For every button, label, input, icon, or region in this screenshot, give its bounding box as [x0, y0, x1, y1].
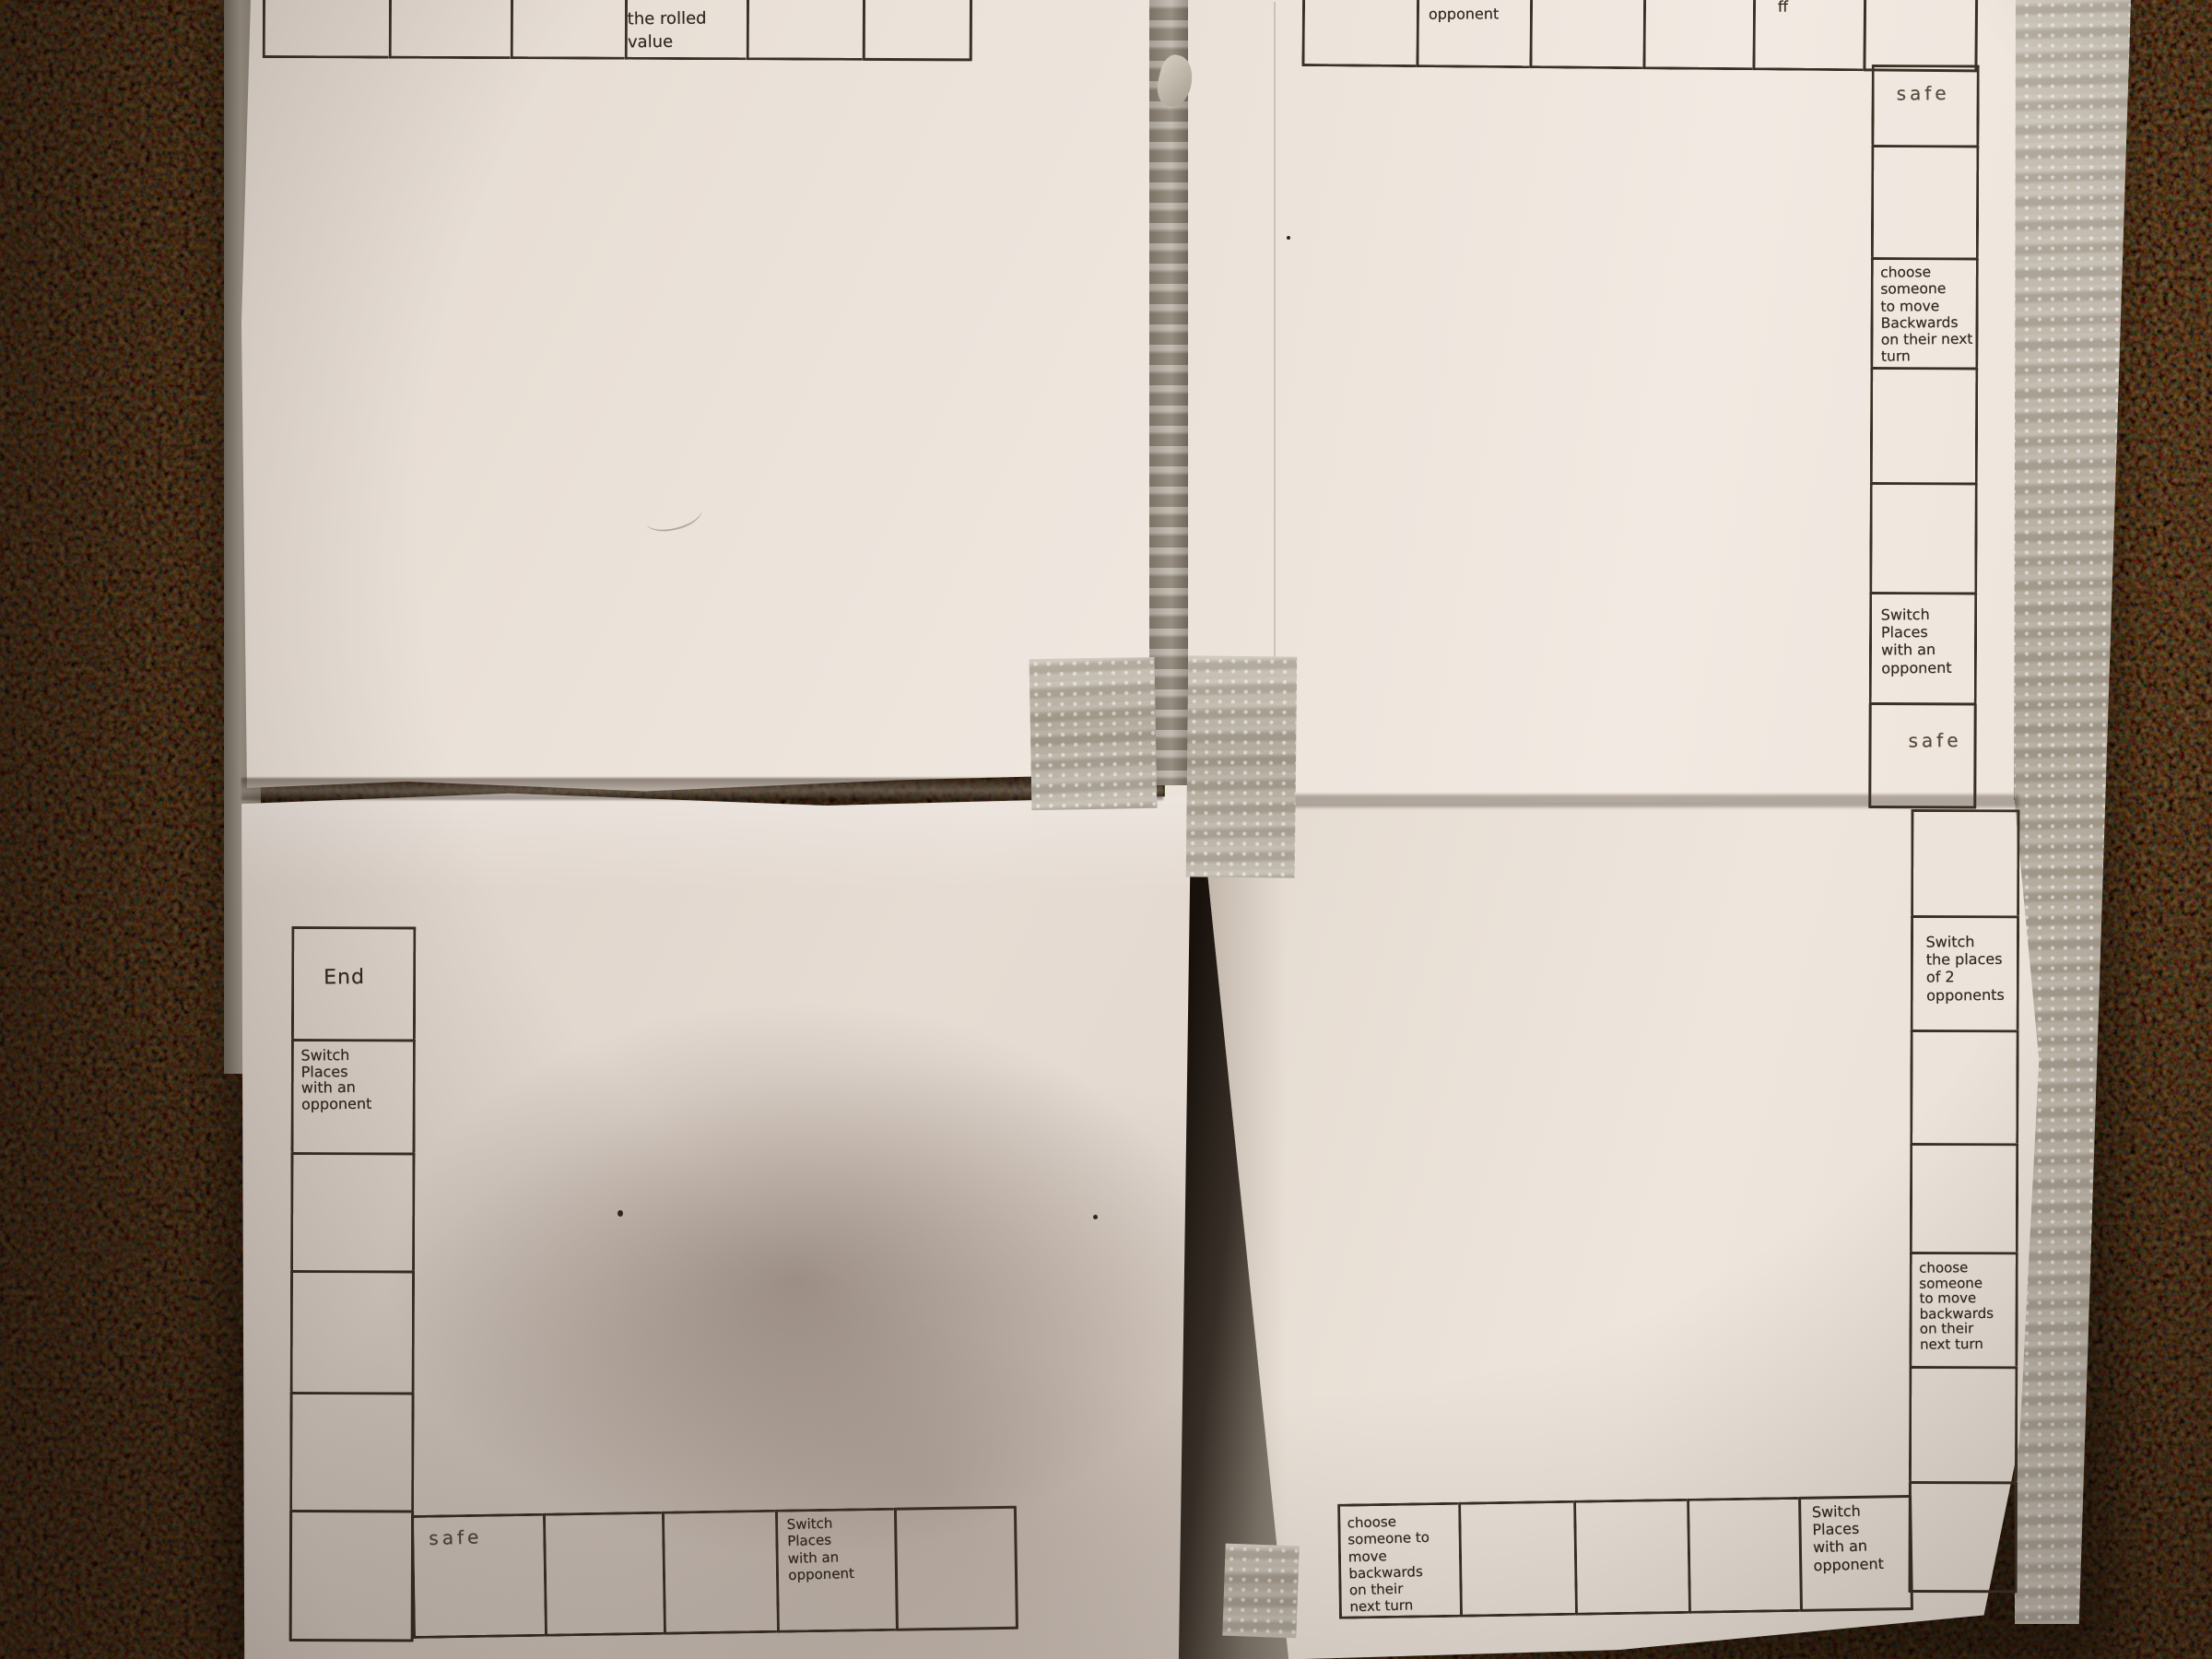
- paper-sheet-top-left: [241, 0, 1159, 807]
- board-cell-bottom-left-row-0: safe: [411, 1513, 545, 1639]
- board-cell-text: End: [324, 966, 365, 989]
- board-cell-bottom-left-column-4: [289, 1392, 414, 1510]
- board-grid-top-right-row: opponentff: [1301, 0, 1978, 72]
- board-cell-top-right-column-1: [1871, 145, 1980, 258]
- board-cell-text: Switch the places of 2 opponents: [1925, 933, 2004, 1005]
- board-cell-top-right-row-5: [1863, 0, 1978, 72]
- duct-tape-patch-right: [1186, 655, 1298, 877]
- board-cell-text: choose someone to move backwards on thei…: [1347, 1512, 1461, 1616]
- board-cell-text: safe: [1897, 82, 1950, 105]
- board-cell-text: Switch Places with an opponent: [1812, 1501, 1885, 1574]
- board-cell-bottom-right-row-4: Switch Places with an opponent: [1798, 1495, 1913, 1612]
- ink-speck: [618, 1210, 623, 1217]
- board-cell-bottom-left-column-1: Switch Places with an opponent: [290, 1039, 415, 1152]
- board-cell-bottom-left-column-5: [289, 1510, 414, 1641]
- board-cell-top-right-column-3: [1870, 367, 1979, 483]
- board-cell-text: the rolled value: [628, 6, 707, 53]
- board-cell-top-right-row-1: opponent: [1416, 0, 1530, 68]
- board-grid-top-right-column: safechoose someone to move Backwards on …: [1868, 65, 1980, 809]
- board-grid-bottom-left-column: EndSwitch Places with an opponent: [289, 926, 417, 1641]
- board-cell-bottom-right-column-0: [1911, 809, 2019, 915]
- ink-speck: [1287, 236, 1290, 240]
- board-cell-top-left-row-4: [747, 0, 864, 61]
- board-cell-text: opponent: [1429, 5, 1499, 23]
- board-cell-bottom-right-column-5: [1909, 1366, 2018, 1481]
- ink-speck: [1093, 1215, 1098, 1219]
- board-grid-bottom-left-row: safeSwitch Places with an opponent: [411, 1506, 1018, 1639]
- board-cell-bottom-right-row-2: [1573, 1499, 1688, 1616]
- board-cell-text: choose someone to move Backwards on thei…: [1880, 264, 1973, 366]
- board-cell-bottom-right-column-4: choose someone to move backwards on thei…: [1909, 1252, 2018, 1366]
- board-cell-top-left-row-1: [389, 0, 512, 59]
- board-grid-bottom-right-row: choose someone to move backwards on thei…: [1337, 1495, 1913, 1619]
- board-cell-top-right-row-3: [1642, 0, 1753, 70]
- board-cell-top-right-column-2: choose someone to move Backwards on thei…: [1870, 257, 1979, 368]
- board-grid-bottom-right-column: Switch the places of 2 opponentschoose s…: [1909, 809, 2020, 1593]
- board-cell-bottom-left-row-2: [662, 1510, 777, 1635]
- board-cell-top-left-row-2: [511, 0, 626, 60]
- board-cell-bottom-left-column-2: [290, 1152, 415, 1270]
- board-cell-bottom-right-row-1: [1458, 1500, 1575, 1618]
- board-cell-bottom-right-column-6: [1909, 1481, 2018, 1593]
- board-cell-bottom-left-row-1: [543, 1512, 664, 1637]
- board-cell-top-right-column-4: [1869, 482, 1978, 593]
- board-cell-top-right-row-0: [1301, 0, 1417, 67]
- board-cell-top-left-row-3: the rolled value: [625, 0, 747, 60]
- board-cell-top-right-row-2: [1529, 0, 1643, 69]
- board-cell-top-left-row-5: [863, 0, 973, 61]
- board-cell-bottom-right-column-3: [1910, 1143, 2018, 1252]
- board-cell-bottom-right-row-0: choose someone to move backwards on thei…: [1337, 1502, 1460, 1619]
- board-cell-text: Switch Places with an opponent: [1881, 606, 1952, 677]
- duct-tape-center-strip: [1149, 0, 1188, 785]
- board-cell-bottom-left-column-0: End: [291, 926, 416, 1039]
- board-cell-text: safe: [1908, 729, 1961, 752]
- board-cell-top-right-column-0: safe: [1871, 65, 1979, 146]
- board-cell-text: safe: [429, 1525, 483, 1549]
- board-cell-text: Switch Places with an opponent: [787, 1514, 855, 1583]
- board-cell-text: ff: [1778, 0, 1788, 16]
- board-cell-top-right-row-4: ff: [1752, 0, 1864, 71]
- board-cell-text: choose someone to move backwards on thei…: [1919, 1260, 2016, 1352]
- board-cell-bottom-left-row-4: [894, 1506, 1018, 1631]
- board-cell-bottom-right-row-3: [1687, 1497, 1800, 1614]
- paper-seam-left: [241, 778, 1163, 800]
- board-cell-top-right-column-6: safe: [1868, 702, 1977, 809]
- board-cell-bottom-left-row-3: Switch Places with an opponent: [775, 1508, 896, 1633]
- board-cell-top-right-column-5: Switch Places with an opponent: [1869, 592, 1978, 703]
- board-cell-bottom-right-column-1: Switch the places of 2 opponents: [1911, 915, 2019, 1030]
- board-cell-top-left-row-0: [263, 0, 390, 59]
- duct-tape-patch-left: [1030, 657, 1158, 810]
- board-cell-text: Switch Places with an opponent: [300, 1047, 371, 1112]
- board-cell-bottom-left-column-3: [290, 1270, 415, 1392]
- duct-tape-patch-bottom: [1222, 1544, 1299, 1639]
- board-cell-bottom-right-column-2: [1910, 1030, 2018, 1143]
- photo-handmade-board-game: Homemade paper board game: four taped-to…: [0, 0, 2212, 1659]
- board-grid-top-left-row: the rolled value: [263, 0, 973, 61]
